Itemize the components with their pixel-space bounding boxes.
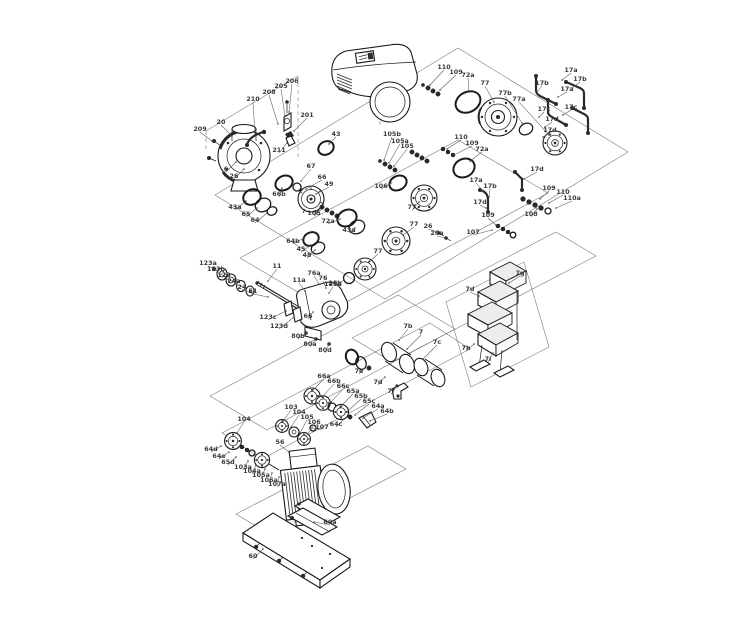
- part-callout-80a: 80a: [303, 340, 316, 348]
- part-callout-77: 77: [481, 79, 490, 87]
- part-callout-211: 211: [272, 146, 285, 154]
- callout-leader-dot: [299, 432, 301, 434]
- callout-leader-dot: [488, 196, 490, 198]
- pipe-fittings-cluster: [478, 74, 590, 214]
- washer: [249, 450, 255, 456]
- callout-leader-dot: [328, 343, 330, 345]
- callout-leader-dot: [305, 332, 307, 334]
- part-callout-77: 77: [408, 203, 417, 211]
- callout-leader: [440, 75, 456, 90]
- pump-flange: [232, 125, 256, 134]
- lock-washer: [289, 427, 299, 437]
- callout-leader-dot: [473, 343, 475, 345]
- part-callout-17d: 17d: [473, 198, 487, 206]
- part-callout-17a: 17a: [469, 176, 482, 184]
- part-callout-64: 64: [251, 216, 260, 224]
- o-ring: [316, 139, 336, 158]
- part-callout-107: 107: [315, 423, 328, 431]
- part-callout-7i: 7i: [485, 355, 492, 363]
- coupling-half: [276, 420, 289, 433]
- shim-plate: [284, 301, 293, 316]
- callout-leader-dot: [548, 134, 550, 136]
- coupling-half: [333, 404, 348, 419]
- part-callout-210: 210: [246, 95, 260, 103]
- part-callout-65: 65: [242, 210, 251, 218]
- callout-leader-dot: [339, 218, 341, 220]
- callout-leader-dot: [293, 316, 295, 318]
- washer: [510, 232, 516, 238]
- part-callout-123c: 123c: [259, 313, 276, 321]
- callout-leader-dot: [383, 159, 385, 161]
- callout-leader-dot: [402, 234, 404, 236]
- callout-leader: [331, 389, 343, 402]
- callout-leader-dot: [255, 464, 257, 466]
- callout-leader-dot: [247, 460, 249, 462]
- part-callout-123d: 123d: [270, 322, 288, 330]
- callout-leader-dot: [290, 426, 292, 428]
- callout-leader: [556, 201, 572, 208]
- part-callout-26: 26: [230, 172, 239, 180]
- part-callout-17b: 17b: [483, 182, 497, 190]
- part-callout-106: 106: [374, 182, 388, 190]
- part-callout-201: 201: [300, 111, 313, 119]
- callout-leader-dot: [236, 432, 238, 434]
- callout-leader-dot: [396, 385, 398, 387]
- washer: [266, 205, 279, 217]
- part-callout-6: 6: [224, 165, 229, 173]
- callout-leader-dot: [468, 91, 470, 93]
- part-callout-206: 206: [285, 77, 299, 85]
- bearing-flange: [382, 227, 410, 255]
- part-callout-7e: 7e: [355, 367, 364, 375]
- callout-leader: [348, 399, 361, 411]
- part-callout-66: 66: [304, 312, 313, 320]
- ring: [293, 183, 301, 191]
- callout-leader-dot: [418, 201, 420, 203]
- part-callout-17b: 17b: [535, 79, 549, 87]
- callout-leader-dot: [429, 84, 431, 86]
- callout-leader: [294, 118, 307, 131]
- callout-leader: [394, 149, 407, 166]
- callout-leader-dot: [343, 279, 345, 281]
- callout-leader: [524, 172, 537, 179]
- callout-leader-dot: [305, 435, 307, 437]
- callout-leader-dot: [282, 420, 284, 422]
- bearing-flange: [354, 258, 376, 280]
- callout-leader: [399, 329, 408, 340]
- callout-leader-dot: [328, 292, 330, 294]
- part-callout-7: 7: [419, 328, 423, 336]
- callout-leader-dot: [328, 143, 330, 145]
- callout-leader-dot: [312, 389, 314, 391]
- part-callout-24: 24: [238, 283, 247, 291]
- callout-leader-dot: [256, 207, 258, 209]
- callout-leader-dot: [220, 445, 222, 447]
- callout-leader: [289, 84, 292, 112]
- callout-leader-dot: [453, 154, 455, 156]
- callout-leader-dot: [539, 198, 541, 200]
- part-callout-109: 109: [481, 211, 495, 219]
- callout-leader-dot: [211, 140, 213, 142]
- covers-cluster: [468, 262, 526, 377]
- part-callout-7f: 7f: [387, 387, 394, 395]
- part-callout-7g: 7g: [515, 269, 524, 277]
- callout-leader: [313, 379, 324, 390]
- part-callout-107: 107: [466, 228, 479, 236]
- callout-leader: [301, 169, 311, 181]
- part-callout-110a: 110a: [563, 194, 581, 202]
- o-ring-small: [517, 121, 535, 137]
- callout-leader-dot: [230, 134, 232, 136]
- callout-leader-dot: [254, 133, 256, 135]
- callout-leader-dot: [538, 116, 540, 118]
- callout-leader-dot: [398, 339, 400, 341]
- part-callout-64b: 64b: [380, 407, 394, 415]
- callout-leader: [221, 125, 231, 135]
- callout-leader-dot: [555, 207, 557, 209]
- part-callout-80b: 80b: [291, 332, 305, 340]
- callout-leader-dot: [262, 548, 264, 550]
- callout-leader-dot: [318, 283, 320, 285]
- coupling-half: [298, 433, 311, 446]
- motor-controller-unit: [332, 44, 418, 122]
- callout-leader-dot: [548, 202, 550, 204]
- callout-leader-dot: [267, 280, 269, 282]
- callout-leader-dot: [311, 427, 313, 429]
- callout-leader: [407, 335, 421, 349]
- callout-leader-dot: [271, 472, 273, 474]
- part-callout-7c: 7c: [433, 338, 441, 346]
- callout-leader-dot: [285, 310, 287, 312]
- part-callout-65d: 65d: [221, 458, 235, 466]
- callout-leader: [430, 70, 444, 85]
- callout-leader: [369, 254, 378, 262]
- callout-leader-dot: [277, 123, 279, 125]
- o-ring: [387, 173, 409, 194]
- part-callout-49: 49: [325, 180, 334, 188]
- part-callout-11a: 11a: [292, 276, 305, 284]
- callout-leader: [470, 152, 482, 161]
- seal-carrier-disc: [479, 98, 517, 136]
- part-callout-72a: 72a: [321, 217, 334, 225]
- callout-leader-dot: [330, 401, 332, 403]
- callout-leader: [454, 146, 472, 155]
- callout-leader-dot: [446, 148, 448, 150]
- part-callout-77a: 77a: [512, 95, 525, 103]
- callout-leader: [423, 345, 437, 359]
- part-callout-51: 51: [249, 287, 258, 295]
- callout-leader-dot: [347, 410, 349, 412]
- callout-leader-dot: [281, 187, 283, 189]
- part-callout-123a: 123a: [324, 280, 342, 288]
- part-callout-48: 48: [303, 251, 312, 259]
- callout-leader-dot: [393, 165, 395, 167]
- callout-leader-dot: [293, 130, 295, 132]
- callout-leader-dot: [557, 96, 559, 98]
- part-callout-43a: 43a: [228, 203, 241, 211]
- callout-leader-dot: [523, 178, 525, 180]
- callout-leader-dot: [422, 358, 424, 360]
- callout-leader-dot: [406, 348, 408, 350]
- callout-leader-dot: [315, 193, 317, 195]
- callout-leader: [269, 95, 278, 124]
- part-callout-77: 77: [374, 247, 383, 255]
- part-callout-64b: 64b: [286, 237, 300, 245]
- callout-leader-dot: [469, 160, 471, 162]
- callout-leader-dot: [369, 420, 371, 422]
- part-callout-60: 60: [249, 552, 258, 560]
- part-callout-7d: 7d: [373, 378, 382, 386]
- callout-leader-dot: [235, 161, 237, 163]
- part-callout-66b: 66b: [272, 190, 286, 198]
- part-callout-56: 56: [276, 438, 285, 446]
- callout-leader-dot: [267, 296, 269, 298]
- sleeve: [379, 340, 417, 376]
- callout-leader-dot: [482, 190, 484, 192]
- part-callout-17c: 17c: [538, 105, 551, 113]
- part-callout-17d: 17d: [530, 165, 544, 173]
- callout-leader-dot: [288, 111, 290, 113]
- callout-leader-dot: [284, 115, 286, 117]
- part-callout-43a: 43a: [342, 226, 355, 234]
- part-callout-17a: 17a: [564, 66, 577, 74]
- callout-leader-dot: [542, 136, 544, 138]
- ring: [344, 273, 355, 284]
- part-callout-67: 67: [307, 162, 316, 170]
- callout-leader-dot: [321, 208, 323, 210]
- bearing-flange: [543, 131, 567, 155]
- callout-leader: [468, 78, 469, 92]
- callout-leader-dot: [384, 376, 386, 378]
- callout-leader: [281, 89, 285, 116]
- callout-leader: [355, 404, 369, 415]
- callout-leader-dot: [362, 417, 364, 419]
- callout-leader-dot: [314, 249, 316, 251]
- callout-leader-dot: [561, 79, 563, 81]
- callout-leader: [540, 191, 549, 199]
- part-callout-17a: 17a: [560, 85, 573, 93]
- part-callout-77: 77: [410, 220, 419, 228]
- callout-leader-dot: [495, 224, 497, 226]
- shim-plate: [293, 307, 302, 322]
- callout-leader: [562, 73, 571, 80]
- callout-leader-dot: [439, 89, 441, 91]
- part-callout-20: 20: [217, 118, 226, 126]
- callout-leader-dot: [243, 168, 245, 170]
- washer: [545, 208, 551, 214]
- guard-bracket: [359, 412, 376, 428]
- callout-leader: [549, 195, 563, 203]
- callout-leader-dot: [321, 396, 323, 398]
- diagram-canvas: 209202102082052062012116264311010972a777…: [0, 0, 752, 632]
- callout-leader: [300, 420, 307, 433]
- callout-leader-dot: [245, 200, 247, 202]
- callout-leader-dot: [304, 290, 306, 292]
- sleeve: [412, 356, 448, 389]
- part-callout-72a: 72a: [475, 145, 488, 153]
- callout-leader-dot: [536, 91, 538, 93]
- callout-leader-dot: [300, 180, 302, 182]
- part-callout-11: 11: [273, 262, 282, 270]
- callout-leader-dot: [305, 188, 307, 190]
- callout-leader-dot: [235, 456, 237, 458]
- callout-leader-dot: [478, 295, 480, 297]
- callout-leader-dot: [562, 114, 564, 116]
- o-ring: [309, 240, 327, 256]
- part-callout-7h: 7h: [462, 344, 471, 352]
- callout-leader-dot: [303, 237, 305, 239]
- part-callout-7b: 7b: [403, 322, 412, 330]
- part-callout-26a: 26a: [430, 229, 443, 237]
- pump-housing: [207, 125, 270, 192]
- part-callout-104: 104: [237, 415, 251, 423]
- callout-leader-dot: [485, 207, 487, 209]
- callout-leader: [237, 422, 244, 433]
- exploded-parts-diagram: 209202102082052062012116264311010972a777…: [0, 0, 752, 632]
- part-callout-80d: 80d: [318, 346, 332, 354]
- callout-leader: [340, 394, 353, 407]
- part-callout-108: 108: [524, 210, 538, 218]
- callout-leader-dot: [339, 406, 341, 408]
- callout-leader-dot: [266, 212, 268, 214]
- callout-leader-dot: [288, 451, 290, 453]
- part-callout-7d: 7d: [465, 285, 474, 293]
- callout-leader-dot: [444, 237, 446, 239]
- motor-end-shield: [370, 82, 410, 122]
- callout-leader-dot: [264, 468, 266, 470]
- callout-leader-dot: [286, 142, 288, 144]
- callout-leader-dot: [368, 261, 370, 263]
- part-callout-17d: 17d: [543, 126, 557, 134]
- callout-leader-dot: [278, 476, 280, 478]
- part-callout-60a: 60a: [323, 518, 336, 526]
- o-ring: [253, 196, 273, 215]
- part-callout-109: 109: [542, 184, 556, 192]
- part-callout-64c: 64c: [330, 420, 343, 428]
- callout-leader-dot: [354, 414, 356, 416]
- part-callout-72a: 72a: [461, 71, 474, 79]
- callout-leader: [489, 189, 490, 197]
- callout-leader-dot: [491, 229, 493, 231]
- part-callout-107a: 107a: [268, 480, 286, 488]
- callout-leader-dot: [313, 521, 315, 523]
- part-callout-105: 105: [307, 209, 320, 217]
- callout-leader-dot: [228, 451, 230, 453]
- part-callout-17d: 17d: [545, 115, 559, 123]
- callout-leader-dot: [388, 162, 390, 164]
- part-callout-17c: 17c: [565, 103, 578, 111]
- callout-leader-dot: [365, 365, 367, 367]
- callout-leader-dot: [508, 282, 510, 284]
- part-callout-105: 105: [400, 142, 413, 150]
- nameplate-sticker: [355, 51, 374, 63]
- part-callout-77b: 77b: [498, 89, 512, 97]
- part-callout-209: 209: [193, 125, 207, 133]
- callout-leader-dot: [390, 182, 392, 184]
- callout-leader-dot: [492, 352, 494, 354]
- coupling-half: [225, 433, 242, 450]
- callout-leader-dot: [521, 122, 523, 124]
- part-callout-43: 43: [332, 130, 341, 138]
- callout-leader-dot: [310, 244, 312, 246]
- part-callout-17b: 17b: [573, 75, 587, 83]
- callout-leader-dot: [343, 418, 345, 420]
- callout-leader-dot: [493, 101, 495, 103]
